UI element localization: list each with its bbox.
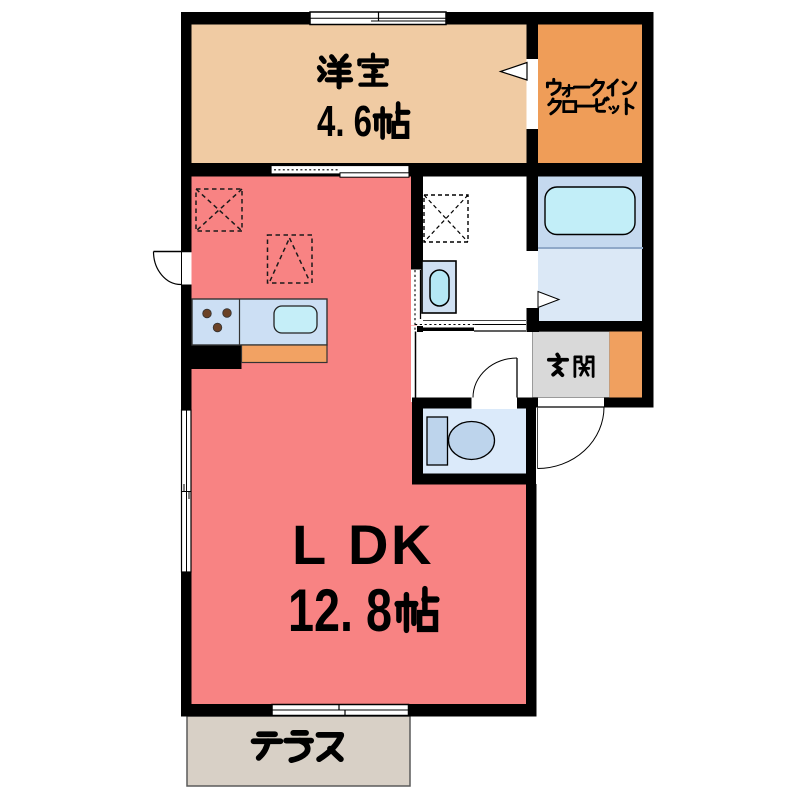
svg-text:K: K — [391, 513, 431, 576]
svg-text:L: L — [292, 513, 326, 576]
svg-text:D: D — [348, 513, 388, 576]
svg-text:4. 6: 4. 6 — [317, 97, 372, 146]
svg-text:12. 8: 12. 8 — [288, 577, 392, 644]
